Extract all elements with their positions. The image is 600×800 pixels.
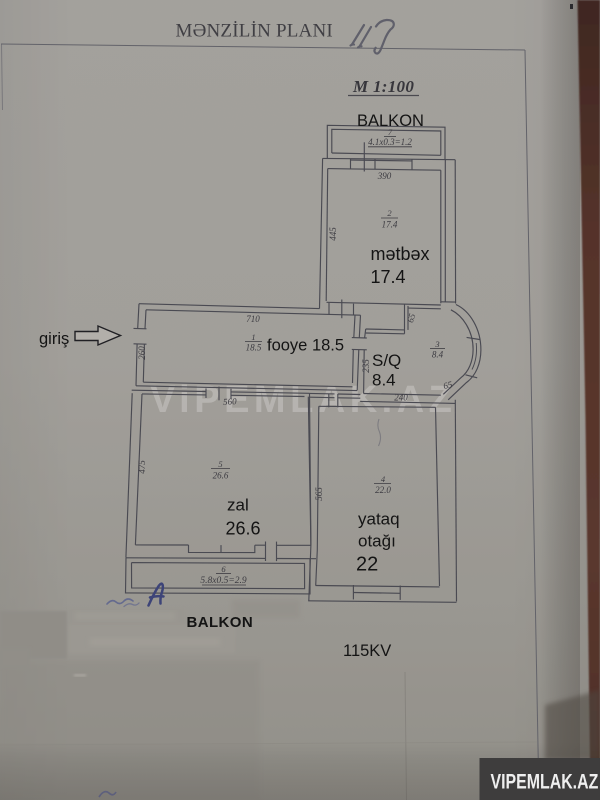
svg-text:26.6: 26.6 [213, 471, 229, 481]
svg-text:22.0: 22.0 [375, 485, 391, 495]
svg-text:235: 235 [361, 359, 371, 373]
svg-text:5.8x0.5=2.9: 5.8x0.5=2.9 [200, 576, 247, 586]
svg-text:445: 445 [328, 227, 338, 241]
svg-text:M 1:100: M 1:100 [352, 77, 414, 96]
svg-text:zal: zal [227, 496, 249, 515]
svg-text:560: 560 [223, 396, 238, 407]
svg-text:MƏNZİLİN PLANI: MƏNZİLİN PLANI [176, 21, 333, 42]
svg-text:260: 260 [137, 346, 147, 360]
svg-text:390: 390 [377, 171, 392, 181]
svg-text:565: 565 [314, 487, 324, 501]
svg-text:17.4: 17.4 [382, 220, 398, 230]
svg-text:8.4: 8.4 [432, 350, 444, 360]
svg-text:BALKON: BALKON [357, 112, 424, 130]
svg-text:8.4: 8.4 [372, 371, 396, 390]
svg-text:710: 710 [246, 314, 260, 324]
svg-text:115KV: 115KV [343, 642, 391, 660]
svg-text:fooye 18.5: fooye 18.5 [267, 337, 344, 355]
svg-text:22: 22 [356, 554, 378, 576]
svg-text:yataq: yataq [358, 510, 400, 529]
svg-text:26.6: 26.6 [226, 519, 261, 539]
svg-text:5: 5 [218, 459, 222, 469]
svg-text:17.4: 17.4 [371, 267, 406, 287]
svg-text:mətbəx: mətbəx [371, 244, 430, 264]
svg-text:giriş: giriş [39, 330, 69, 348]
svg-text:1: 1 [251, 332, 255, 342]
svg-text:otağı: otağı [358, 532, 396, 551]
svg-text:VIPEMLAK.AZ: VIPEMLAK.AZ [491, 770, 599, 794]
svg-text:475: 475 [137, 460, 147, 474]
svg-text:3: 3 [434, 339, 439, 349]
svg-text:4.1x0.3=1.2: 4.1x0.3=1.2 [368, 137, 412, 147]
svg-text:BALKON: BALKON [187, 614, 254, 631]
svg-text:S/Q: S/Q [372, 351, 401, 370]
svg-text:18.5: 18.5 [246, 343, 262, 353]
svg-text:240: 240 [394, 393, 408, 403]
